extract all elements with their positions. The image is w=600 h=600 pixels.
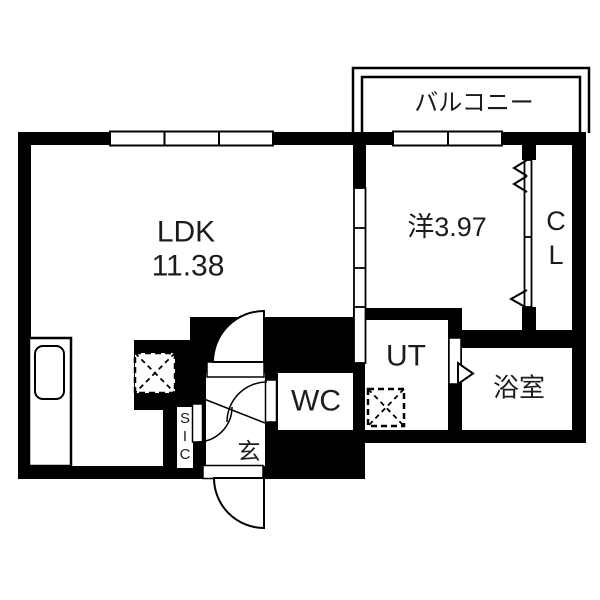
wall-ut-top <box>353 308 462 320</box>
ldk-label: LDK <box>157 216 215 248</box>
wall-closet-stub-bottom <box>522 307 536 330</box>
wall-closet-stub-top <box>522 145 536 160</box>
wall-right <box>572 132 586 443</box>
wall-bath-top <box>448 330 586 348</box>
washing-machine-box-ut <box>368 389 404 426</box>
kitchen-counter <box>29 338 71 466</box>
window-ldk <box>110 132 273 146</box>
closet-label: C L <box>546 204 566 272</box>
floor-plan: バルコニー LDK 11.38 洋3.97 C L UT WC 浴室 S I C… <box>0 0 600 600</box>
wc-label: WC <box>291 385 341 417</box>
shoe-closet-label: S I C <box>180 410 191 464</box>
wall-ldk-western-top <box>353 132 366 188</box>
kitchen-sink <box>35 346 64 399</box>
wall-below-wc <box>265 430 365 470</box>
utility-label: UT <box>386 340 426 372</box>
sliding-door-ldk-western <box>354 188 366 363</box>
entrance-label: 玄 <box>238 439 261 463</box>
ldk-area-label: 11.38 <box>152 250 225 282</box>
balcony-label: バルコニー <box>414 90 534 115</box>
wall-bottom-right <box>353 430 586 443</box>
wall-wc-right <box>353 363 365 430</box>
bath-label: 浴室 <box>493 374 545 401</box>
window-western-room <box>393 132 502 146</box>
western-room-label: 洋3.97 <box>407 213 487 241</box>
door-sic-leaf <box>193 404 203 442</box>
equipment-box-ldk <box>135 353 175 393</box>
